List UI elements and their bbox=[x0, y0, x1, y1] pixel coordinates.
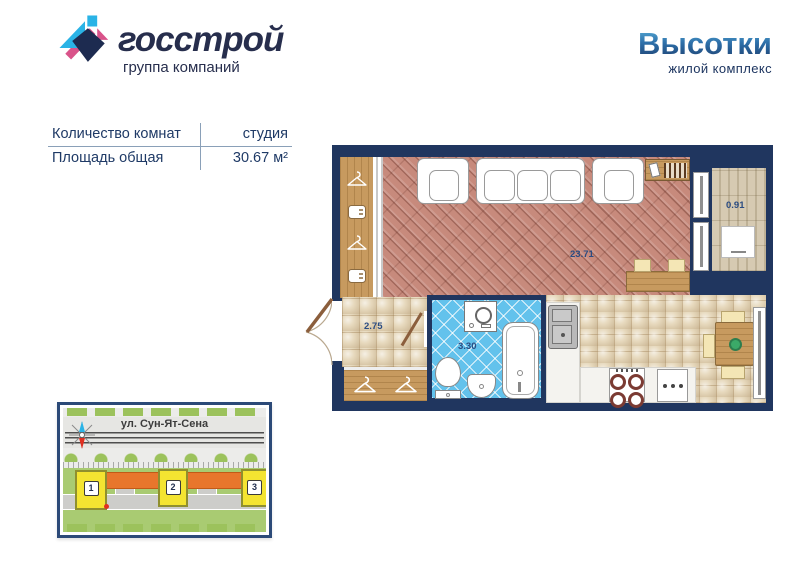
dining-chair bbox=[721, 366, 745, 379]
balcony-door bbox=[693, 172, 709, 218]
sofa bbox=[476, 158, 585, 204]
site-map: ул. Сун-Ят-Сена 1 bbox=[57, 402, 272, 538]
area-value: 30.67 м² bbox=[201, 147, 292, 170]
entrance-opening bbox=[332, 301, 342, 361]
map-building-3: 3 bbox=[241, 469, 266, 507]
stool bbox=[634, 259, 651, 272]
wardrobe-sliding-door bbox=[373, 157, 383, 298]
complex-tagline: жилой комплекс bbox=[668, 61, 772, 76]
balcony-stand bbox=[721, 226, 755, 258]
building-number: 1 bbox=[84, 481, 99, 496]
map-green-strip bbox=[67, 524, 262, 532]
info-row-area: Площадь общая 30.67 м² bbox=[48, 147, 292, 170]
bathtub bbox=[502, 322, 539, 399]
map-building-1: 1 bbox=[75, 470, 107, 510]
rooms-label: Количество комнат bbox=[48, 123, 201, 146]
dining-table bbox=[715, 322, 754, 366]
hanger-icon bbox=[346, 171, 368, 189]
complex-name: Высотки bbox=[638, 26, 772, 62]
toilet bbox=[434, 357, 462, 399]
bathroom: 3.30 bbox=[427, 295, 546, 403]
apartment-info-table: Количество комнат студия Площадь общая 3… bbox=[48, 123, 292, 170]
compass-icon bbox=[67, 420, 97, 450]
location-dot bbox=[104, 504, 109, 509]
books-row-icon bbox=[664, 163, 687, 178]
map-green-strip bbox=[67, 408, 262, 416]
balcony-area-label: 0.91 bbox=[726, 200, 745, 211]
balcony-floor: 0.91 bbox=[712, 168, 766, 271]
balcony-window bbox=[693, 222, 709, 271]
dining-chair bbox=[703, 334, 715, 358]
stove bbox=[609, 368, 645, 402]
hallway-area-label: 2.75 bbox=[364, 321, 383, 332]
bathroom-area-label: 3.30 bbox=[458, 341, 477, 352]
armchair-left bbox=[417, 158, 469, 204]
plant-icon bbox=[729, 338, 742, 351]
site-map-content: ул. Сун-Ят-Сена 1 bbox=[63, 408, 266, 532]
brand-tagline: группа компаний bbox=[123, 59, 240, 76]
washing-machine bbox=[464, 301, 497, 332]
building-number: 3 bbox=[247, 480, 262, 495]
wardrobe-strip bbox=[340, 157, 373, 298]
area-label: Площадь общая bbox=[48, 147, 201, 170]
entrance-door-swing bbox=[304, 295, 333, 369]
floor-plan: 23.71 0.91 2.75 bbox=[332, 145, 773, 411]
armchair-right bbox=[592, 158, 644, 204]
kitchen-window bbox=[753, 307, 766, 399]
shelf-unit bbox=[645, 159, 690, 181]
stool bbox=[668, 259, 685, 272]
info-row-rooms: Количество комнат студия bbox=[48, 123, 292, 147]
kitchen-sink bbox=[548, 305, 578, 349]
map-building-2: 2 bbox=[158, 469, 188, 507]
dishwasher bbox=[657, 369, 688, 402]
hallway-floor: 2.75 bbox=[342, 297, 427, 367]
rooms-value: студия bbox=[201, 123, 292, 146]
desk bbox=[626, 271, 690, 292]
hall-closet bbox=[344, 367, 427, 401]
building-number: 2 bbox=[166, 480, 181, 495]
hanger-icon bbox=[346, 235, 368, 253]
brand-name: госстрой bbox=[118, 20, 283, 60]
hanger-icon bbox=[352, 376, 378, 396]
hanger-icon bbox=[393, 376, 419, 396]
shelf-box-icon bbox=[347, 204, 367, 220]
book-icon bbox=[648, 162, 660, 178]
flyer-page: госстрой группа компаний Высотки жилой к… bbox=[0, 0, 800, 565]
living-room-area-label: 23.71 bbox=[570, 249, 594, 260]
map-bushes-row bbox=[63, 449, 266, 462]
shelf-box-icon bbox=[347, 268, 367, 284]
gosstroy-house-icon bbox=[56, 13, 114, 69]
